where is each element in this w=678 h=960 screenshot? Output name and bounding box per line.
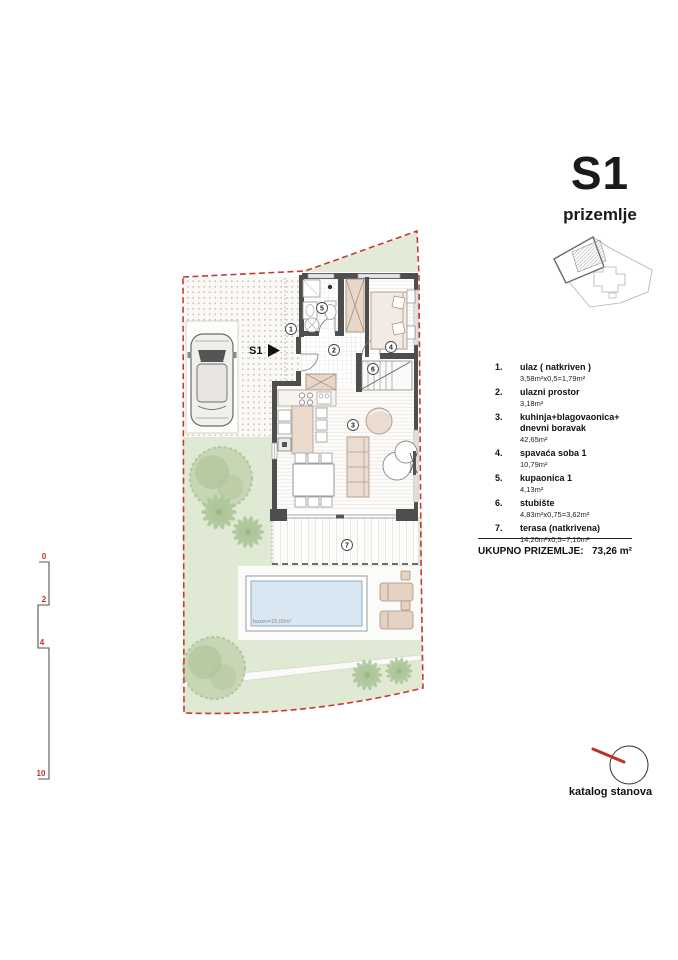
legend-number: 3. — [478, 412, 505, 445]
total-label: UKUPNO PRIZEMLJE: — [478, 546, 584, 557]
scale-bar: 0 2 4 10 — [37, 552, 49, 779]
legend-label: stubište — [520, 498, 589, 509]
title-block: S1 prizemlje — [540, 150, 660, 225]
legend-area: 10,79m² — [520, 460, 587, 470]
legend-number: 1. — [478, 362, 505, 384]
legend-area: 3,58m²x0,5=1,79m² — [520, 374, 591, 384]
unit-pointer-label: S1 — [249, 345, 262, 357]
legend-label: kupaonica 1 — [520, 473, 572, 484]
legend-number: 5. — [478, 473, 505, 495]
legend-area: 4,13m² — [520, 485, 572, 495]
pool-area: bazen=15,00m² — [238, 566, 421, 640]
unit-title: S1 — [540, 150, 660, 196]
katalog-caption: katalog stanova — [553, 786, 668, 798]
legend-area: 4,83m²x0,75=3,62m² — [520, 510, 589, 520]
legend-row: 3. kuhinja+blagovaonica+dnevni boravak42… — [478, 412, 653, 445]
pool-size-label: bazen=15,00m² — [253, 619, 292, 625]
legend-row: 5. kupaonica 14,13m² — [478, 473, 653, 495]
legend-number: 4. — [478, 448, 505, 470]
key-plan — [554, 237, 652, 307]
scale-2: 2 — [42, 595, 47, 604]
scale-10: 10 — [37, 769, 46, 778]
car — [188, 334, 237, 426]
dial-circle-icon — [610, 746, 648, 784]
scale-4: 4 — [40, 638, 45, 647]
legend-row: 4. spavaća soba 110,79m² — [478, 448, 653, 470]
legend-label: ulazni prostor — [520, 387, 580, 398]
room-marker-6: 6 — [371, 367, 375, 374]
room-marker-3: 3 — [351, 423, 355, 430]
room-marker-7: 7 — [345, 543, 349, 550]
total-row: UKUPNO PRIZEMLJE: 73,26 m² — [478, 538, 632, 557]
legend-area: 42,65m² — [520, 435, 620, 445]
legend-number: 2. — [478, 387, 505, 409]
legend-row: 1. ulaz ( natkriven )3,58m²x0,5=1,79m² — [478, 362, 653, 384]
legend-area: 3,18m² — [520, 399, 580, 409]
legend-label: terasa (natkrivena) — [520, 523, 600, 534]
room-marker-2: 2 — [332, 348, 336, 355]
legend-label: spavaća soba 1 — [520, 448, 587, 459]
legend-label: kuhinja+blagovaonica+ — [520, 412, 620, 423]
room-marker-1: 1 — [289, 327, 293, 334]
legend-row: 6. stubište4,83m²x0,75=3,62m² — [478, 498, 653, 520]
floor-plan-sheet: bazen=15,00m² — [0, 0, 678, 960]
scale-0: 0 — [42, 552, 47, 561]
katalog-dial — [593, 746, 648, 784]
parking-area — [186, 321, 238, 433]
dining-set — [293, 453, 334, 507]
room-marker-4: 4 — [389, 345, 393, 352]
floor-subtitle: prizemlje — [540, 205, 660, 225]
room-marker-5: 5 — [320, 306, 324, 313]
total-value: 73,26 m² — [592, 546, 632, 557]
room-legend: 1. ulaz ( natkriven )3,58m²x0,5=1,79m² 2… — [478, 362, 653, 548]
legend-label: ulaz ( natkriven ) — [520, 362, 591, 373]
legend-row: 2. ulazni prostor3,18m² — [478, 387, 653, 409]
legend-number: 6. — [478, 498, 505, 520]
